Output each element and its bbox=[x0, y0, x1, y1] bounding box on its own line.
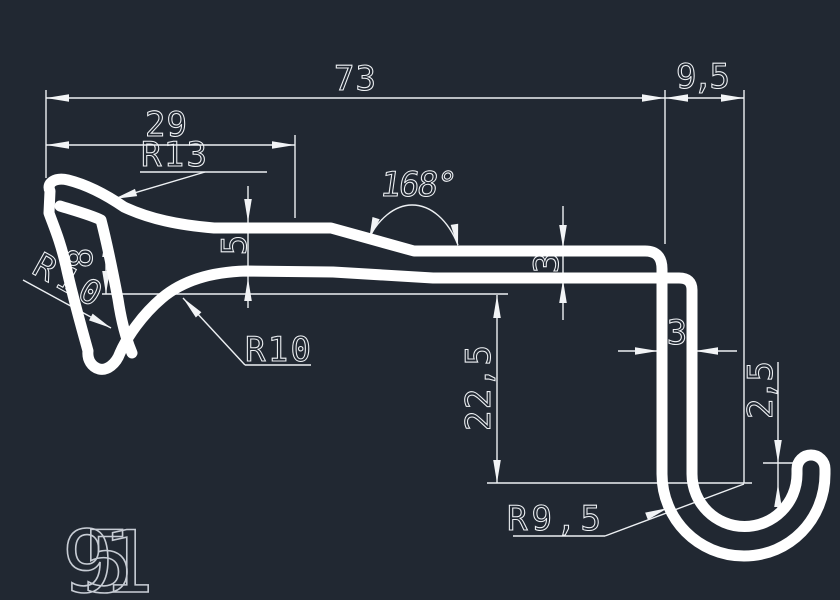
arrowhead bbox=[493, 460, 501, 483]
arrowhead bbox=[46, 94, 69, 102]
cad-canvas: 73 9,5 29 R13 168° 5 8 R10 R10 3 3 22,5 … bbox=[0, 0, 840, 600]
arrowhead-leader-r10-outer bbox=[89, 314, 113, 332]
arrowhead bbox=[642, 94, 665, 102]
profile-layer bbox=[49, 179, 825, 556]
arrowhead bbox=[244, 199, 252, 222]
dim-label-95: 9,5 bbox=[676, 57, 730, 97]
dim-label-3-hook: 3 bbox=[667, 313, 687, 353]
dim-label-168: 168° bbox=[378, 165, 460, 205]
dim-label-r10-inner: R10 bbox=[245, 330, 311, 370]
dim-label-73: 73 bbox=[334, 59, 376, 99]
arrowhead bbox=[272, 141, 295, 149]
dim-label-r13: R13 bbox=[141, 135, 207, 175]
arrowhead bbox=[559, 225, 567, 248]
profile-outline bbox=[49, 179, 825, 556]
arrowhead bbox=[46, 141, 69, 149]
dimension-layer: 73 9,5 29 R13 168° 5 8 R10 R10 3 3 22,5 … bbox=[23, 57, 794, 539]
dim-label-225: 22,5 bbox=[459, 345, 499, 431]
arrowhead bbox=[493, 295, 501, 318]
cad-drawing-951: 73 9,5 29 R13 168° 5 8 R10 R10 3 3 22,5 … bbox=[0, 0, 840, 600]
arrowhead bbox=[774, 440, 782, 463]
dim-label-25: 2,5 bbox=[741, 361, 781, 419]
dim-label-r95: R9,5 bbox=[507, 499, 601, 539]
arrowhead bbox=[244, 278, 252, 301]
part-number: 951 bbox=[62, 513, 154, 600]
arrowhead bbox=[635, 347, 658, 355]
arrowhead bbox=[695, 347, 718, 355]
arrowhead-angle-right bbox=[451, 224, 462, 248]
dim-label-5: 5 bbox=[215, 235, 255, 255]
arrowhead bbox=[774, 484, 782, 507]
